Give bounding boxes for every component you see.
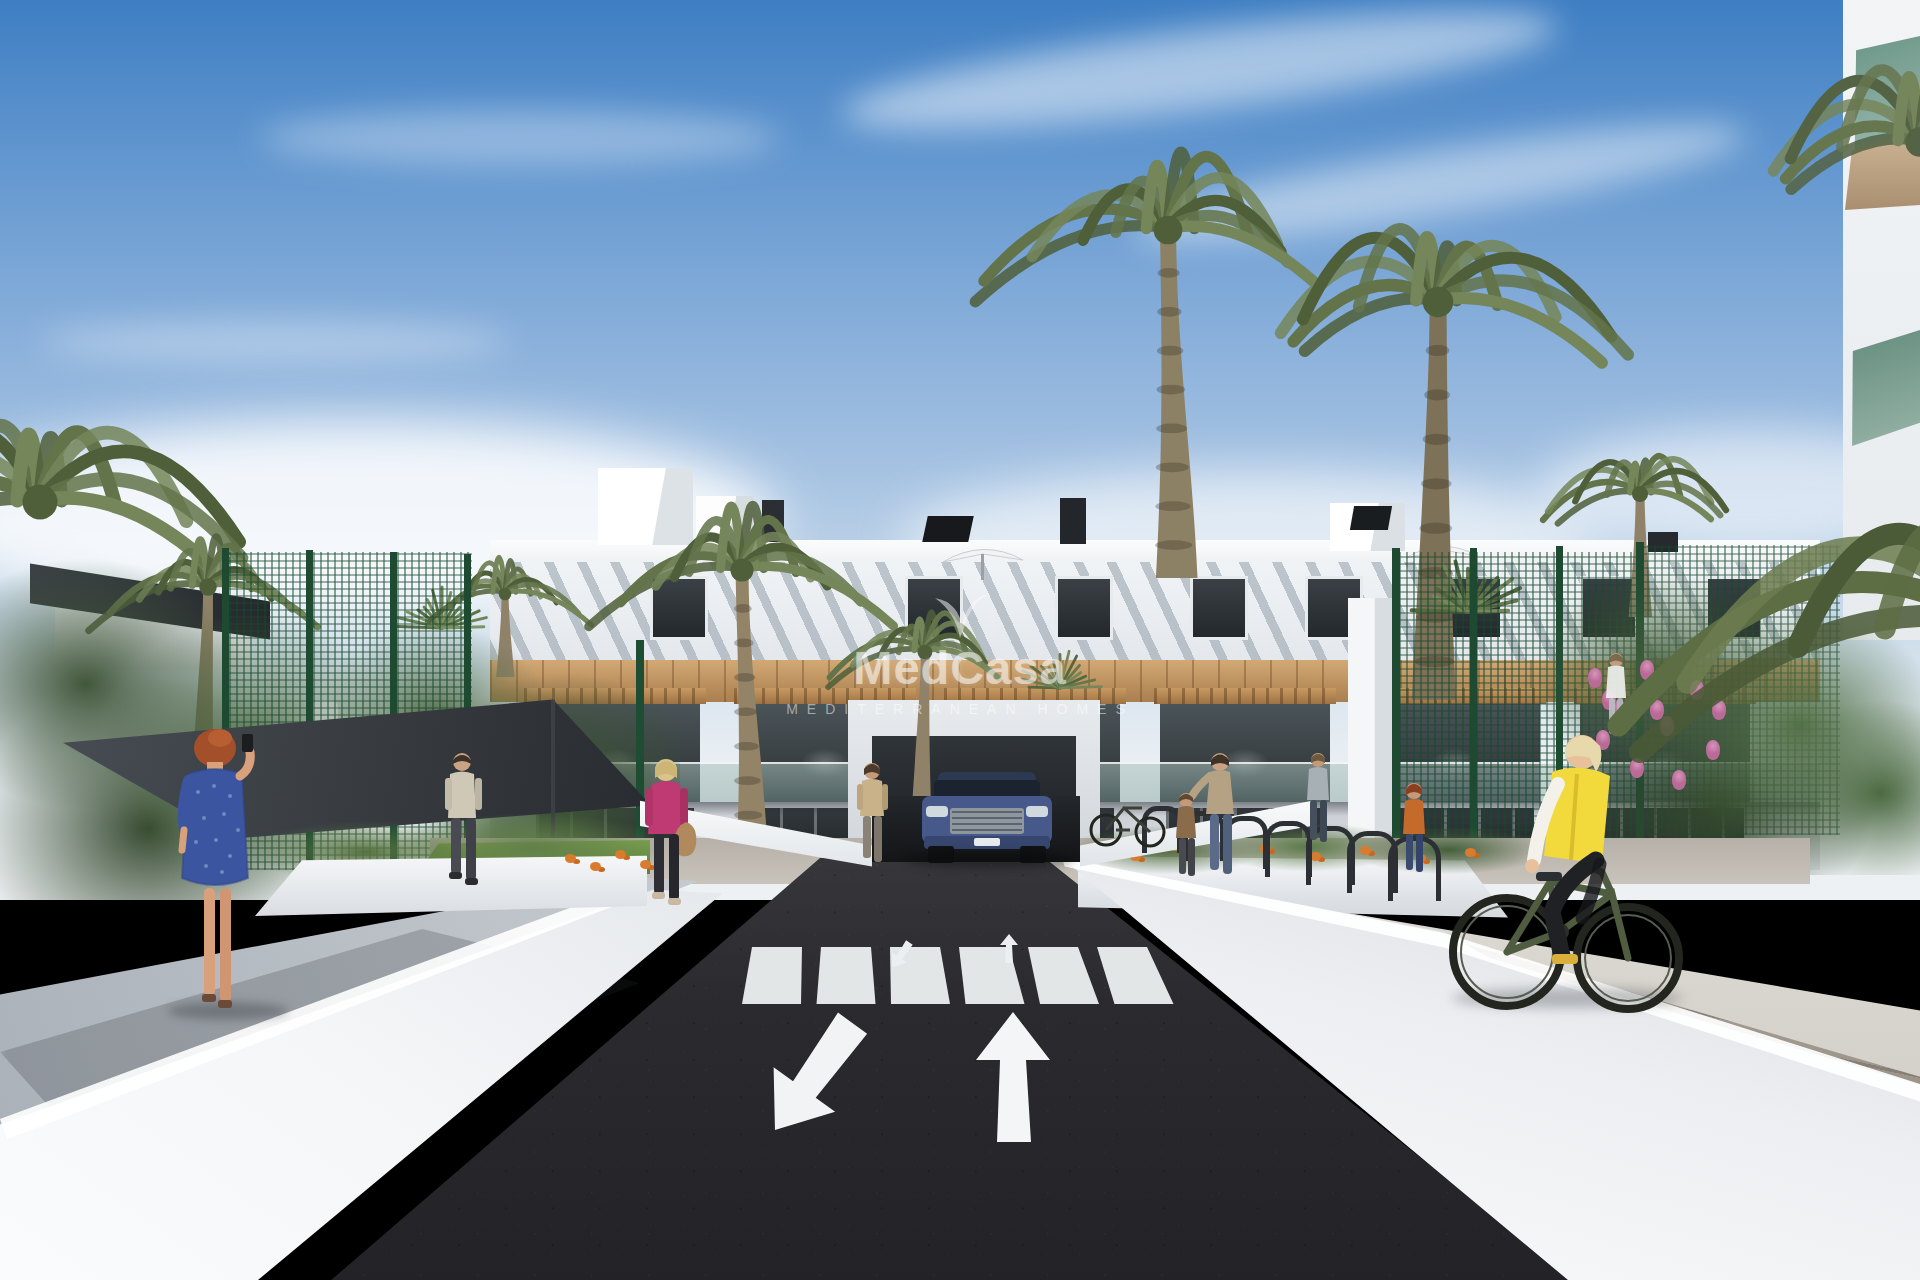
scene-render: MedCasa MEDITERRANEAN HOMES xyxy=(0,0,1920,1280)
watermark: MedCasa MEDITERRANEAN HOMES xyxy=(660,586,1260,717)
watermark-brand: MedCasa xyxy=(660,640,1260,695)
watermark-tagline: MEDITERRANEAN HOMES xyxy=(660,701,1260,717)
palm-tree xyxy=(1773,70,1920,203)
palm-tree xyxy=(1618,480,1920,752)
watermark-leaf-icon xyxy=(925,586,995,640)
